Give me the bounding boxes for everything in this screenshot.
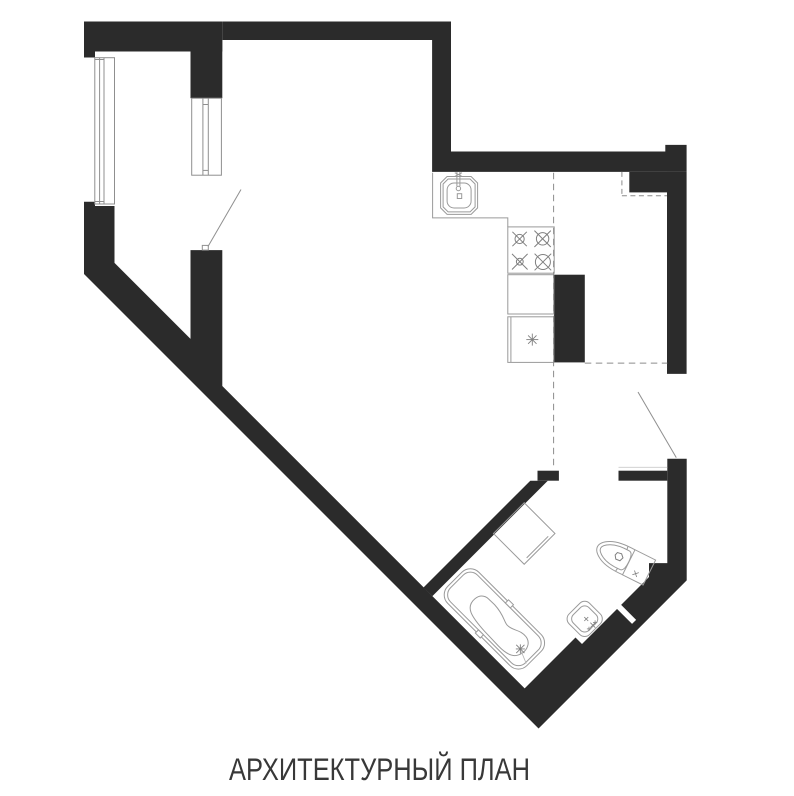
- svg-text:АРХИТЕКТУРНЫЙ ПЛАН: АРХИТЕКТУРНЫЙ ПЛАН: [229, 751, 530, 787]
